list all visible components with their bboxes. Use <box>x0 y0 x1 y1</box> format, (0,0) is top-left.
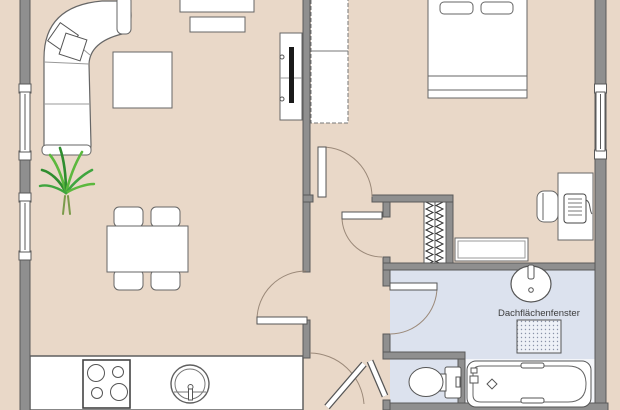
floorplan-canvas: Dachflächenfenster <box>0 0 620 410</box>
dining-table <box>107 226 188 272</box>
wall-living-bedroom <box>303 0 310 195</box>
tub-faucet-icon <box>471 368 477 373</box>
wall-hall-east-1 <box>383 202 390 217</box>
wall-shelf <box>455 238 528 261</box>
tv-unit <box>280 33 302 120</box>
sofa-armrest <box>42 145 91 155</box>
double-bed <box>428 0 527 98</box>
faucet-icon <box>189 389 193 400</box>
wall-hall-west-lower <box>303 320 310 358</box>
dining-chair <box>114 270 143 290</box>
wall-bedroom-south-left <box>303 195 313 202</box>
tub-handle <box>521 363 544 368</box>
dining-chair <box>114 207 143 227</box>
wall-right <box>595 0 606 410</box>
tv-screen <box>289 47 294 103</box>
window-left-lower <box>19 193 31 260</box>
wardrobe <box>311 0 348 123</box>
kitchen-sink <box>171 365 209 403</box>
wall-hall-east-2 <box>383 257 390 286</box>
door-leaf <box>257 317 307 324</box>
bathtub <box>467 361 591 407</box>
door-leaf <box>342 212 382 219</box>
wall-wc-north <box>383 352 465 359</box>
wall-bedroom-south-right <box>372 195 453 202</box>
coffee-table <box>113 52 172 108</box>
stove <box>83 360 130 408</box>
pillow <box>440 2 473 14</box>
pillow <box>481 2 513 14</box>
wall-hall-west-upper <box>303 202 310 272</box>
tub-handle <box>521 398 544 403</box>
stairs <box>424 200 446 266</box>
floorplan-svg: Dachflächenfenster <box>0 0 620 410</box>
door-leaf <box>318 147 326 197</box>
sideboard <box>180 0 254 12</box>
door-leaf <box>390 283 437 290</box>
bathroom-sink <box>511 265 551 302</box>
roof-window-label: Dachflächenfenster <box>498 308 580 319</box>
tub-faucet-icon <box>470 376 478 383</box>
wall-bathroom-north <box>383 263 595 270</box>
kitchen-zone <box>30 356 303 410</box>
dining-chair <box>151 207 180 227</box>
toilet <box>409 367 461 398</box>
wall-hall-east-4 <box>383 400 390 410</box>
dining-chair <box>151 270 180 290</box>
wall-closet-east <box>446 202 453 263</box>
window-right <box>595 84 607 159</box>
sofa-armrest <box>117 0 131 34</box>
roof-window <box>517 320 561 353</box>
desk-chair <box>537 191 558 222</box>
sideboard-bench <box>190 17 245 32</box>
kitchen-counter <box>30 356 303 410</box>
toilet-bowl <box>409 368 443 397</box>
faucet-icon <box>528 265 534 279</box>
window-left-upper <box>19 84 31 160</box>
